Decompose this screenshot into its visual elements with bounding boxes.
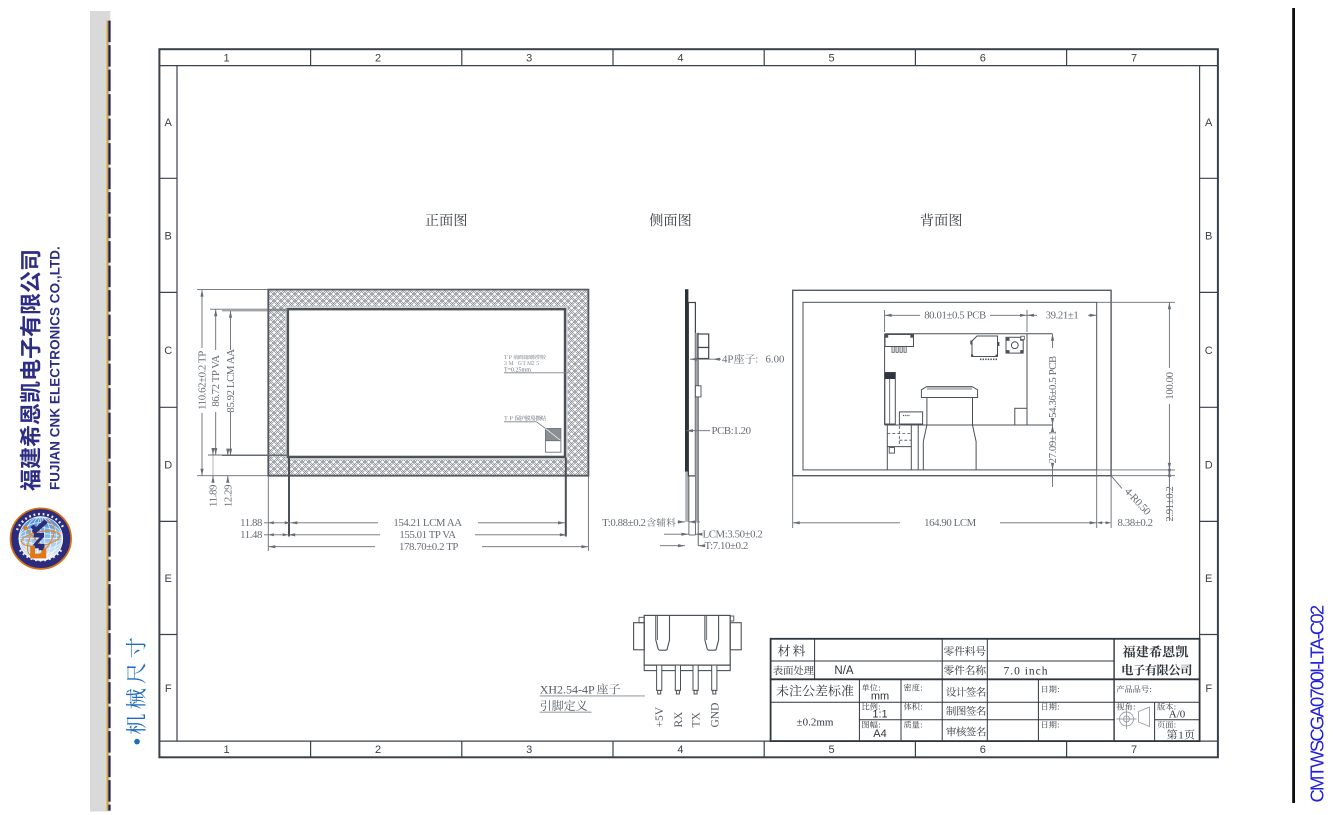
svg-text:11.88: 11.88 [240,517,262,529]
svg-text:LCM:3.50±0.2: LCM:3.50±0.2 [703,529,763,541]
svg-text:4P: 4P [722,354,733,366]
svg-text:7.0 inch: 7.0 inch [1003,666,1048,678]
svg-text:8.38±0.2: 8.38±0.2 [1118,517,1153,529]
svg-text::: : [1174,721,1176,730]
svg-text:FUJIAN CNK ELECTRONICS CO.,LTD: FUJIAN CNK ELECTRONICS CO.,LTD. [48,246,63,490]
svg-text:27.09±1: 27.09±1 [1047,431,1059,464]
svg-text:T:0.88±0.2: T:0.88±0.2 [602,517,645,529]
svg-text::: : [1057,703,1059,712]
svg-text:TX: TX [691,711,703,727]
svg-text:5: 5 [829,744,835,756]
svg-text:E: E [165,573,172,585]
svg-text:39.21±1: 39.21±1 [1046,310,1079,322]
svg-text:100.00: 100.00 [1164,372,1176,399]
svg-text:164.90 LCM: 164.90 LCM [924,517,977,529]
svg-text:178.70±0.2 TP: 178.70±0.2 TP [399,541,458,553]
svg-text::: : [920,703,922,712]
svg-text:6.00: 6.00 [766,354,785,366]
svg-text:12.29: 12.29 [222,485,234,507]
svg-text:80.01±0.5 PCB: 80.01±0.5 PCB [924,310,986,322]
svg-text:CMTWSCGA0700I-LTA-C02: CMTWSCGA0700I-LTA-C02 [1307,605,1328,802]
svg-text:2: 2 [375,52,381,64]
svg-text:110.62±0.2 TP: 110.62±0.2 TP [197,351,209,410]
svg-text:N/A: N/A [834,665,854,677]
svg-text:4-R0.50: 4-R0.50 [1122,486,1153,518]
svg-text:C: C [164,345,172,357]
svg-text:2: 2 [375,744,381,756]
svg-text:1: 1 [224,744,230,756]
svg-text:RX: RX [673,711,685,728]
svg-text:±0.2mm: ±0.2mm [797,717,834,729]
svg-text:4: 4 [677,52,683,64]
svg-text:A: A [1205,117,1213,129]
svg-text:3: 3 [526,744,532,756]
svg-text:1: 1 [1178,730,1184,742]
svg-text:A: A [165,117,173,129]
svg-text:7: 7 [1131,52,1137,64]
svg-text:B: B [1205,230,1212,242]
svg-text:mm: mm [871,691,889,703]
svg-text:7: 7 [1131,744,1137,756]
svg-text:C: C [1205,345,1213,357]
svg-text:D: D [164,459,172,471]
svg-text:5: 5 [829,52,835,64]
svg-text::: : [1133,703,1135,712]
svg-text:6: 6 [980,52,986,64]
svg-text:GND: GND [709,703,721,728]
svg-text:4: 4 [677,744,683,756]
svg-text:11.48: 11.48 [240,529,262,541]
svg-text::: : [920,684,922,693]
svg-text:86.72 TP VA: 86.72 TP VA [210,355,222,407]
svg-text::: : [1057,721,1059,730]
svg-text:11.89: 11.89 [208,485,220,507]
svg-text:6: 6 [980,744,986,756]
svg-text:B: B [165,230,172,242]
svg-text:154.21 LCM AA: 154.21 LCM AA [393,517,462,529]
svg-text:F: F [165,683,172,695]
svg-text:F: F [1205,683,1212,695]
svg-text:1:1: 1:1 [872,709,887,721]
svg-text:PCB:1.20: PCB:1.20 [712,425,751,437]
svg-text::: : [1057,685,1059,694]
svg-text:E: E [1205,573,1212,585]
svg-text:3: 3 [526,52,532,64]
svg-text:2.91±0.2: 2.91±0.2 [1164,486,1176,521]
svg-text::: : [920,721,922,730]
svg-text:85.92 LCM AA: 85.92 LCM AA [225,349,237,413]
svg-text:XH2.54-4P: XH2.54-4P [540,683,595,697]
svg-text:1: 1 [224,52,230,64]
svg-text::: : [1150,685,1152,694]
svg-text:54.36±0.5 PCB: 54.36±0.5 PCB [1047,356,1059,418]
svg-text:A4: A4 [873,728,886,740]
svg-text:155.01 TP VA: 155.01 TP VA [399,529,456,541]
svg-text:A/0: A/0 [1169,709,1186,721]
svg-text:D: D [1205,459,1213,471]
svg-text:T:7.10±0.2: T:7.10±0.2 [705,540,748,552]
svg-text:+5V: +5V [654,706,666,727]
